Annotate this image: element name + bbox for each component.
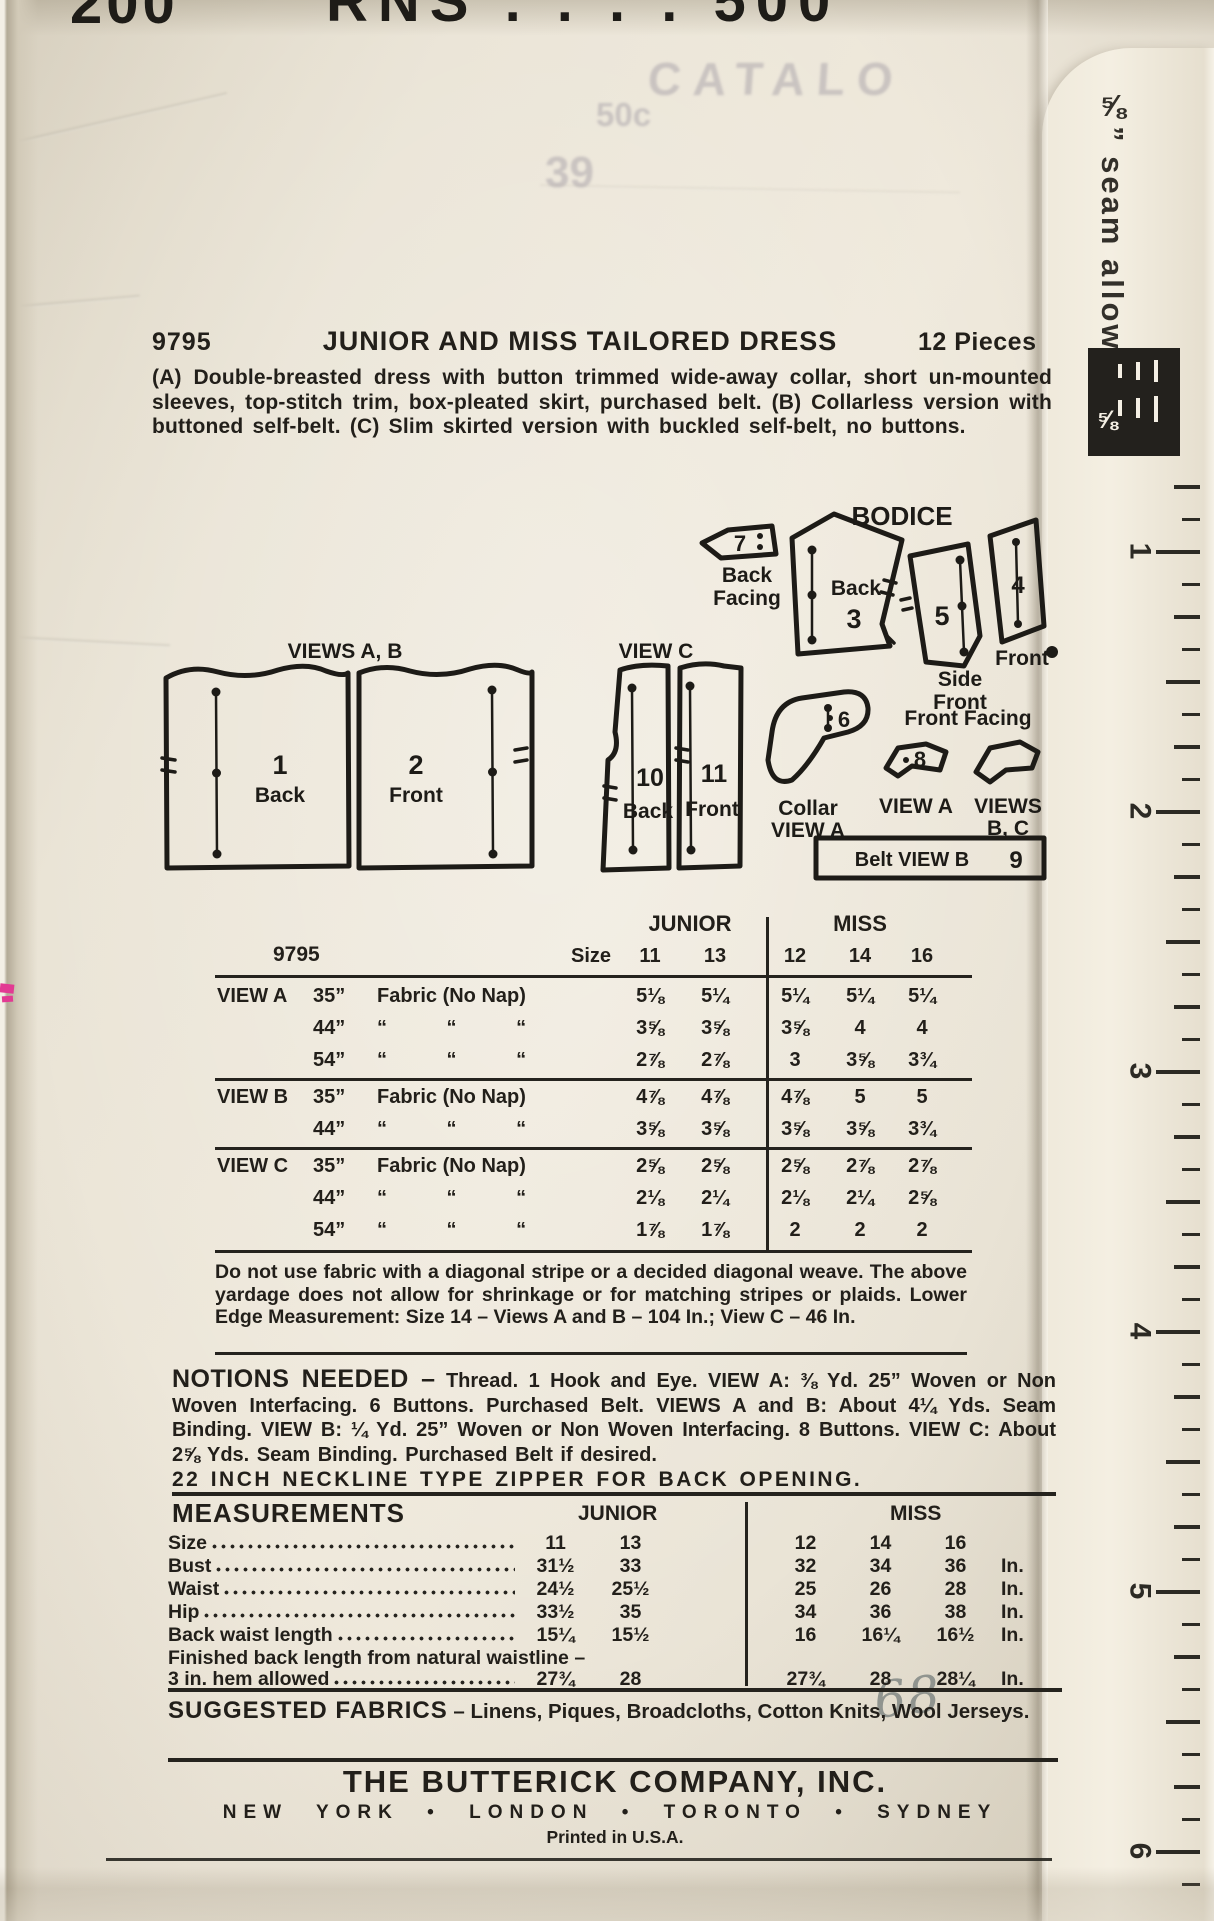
ruler-tick [1174, 615, 1200, 619]
measure-miss-14: 14 [843, 1532, 918, 1555]
fabric-width: 35” [313, 1155, 373, 1178]
fabrics-body: – Linens, Piques, Broadcloths, Cotton Kn… [453, 1700, 1029, 1723]
ruler-tick [1182, 843, 1200, 847]
page-title: JUNIOR AND MISS TAILORED DRESS [323, 326, 838, 357]
measurement-label: Hip [168, 1601, 199, 1624]
fabric-label: “ “ “ [377, 1187, 617, 1210]
yardage-junior-11: 2⅛ [615, 1187, 685, 1210]
yardage-miss-12: 3⅝ [760, 1118, 830, 1141]
fabric-label: Fabric (No Nap) [377, 1086, 617, 1109]
suggested-fabrics: SUGGESTED FABRICS – Linens, Piques, Broa… [168, 1698, 1052, 1724]
yardage-junior-13: 4⅞ [680, 1086, 750, 1109]
pink-mark [0, 983, 14, 993]
miss-header: MISS [795, 911, 925, 937]
piece-10-number: 10 [636, 764, 664, 792]
piece-8-number: 8 [914, 747, 926, 772]
yardage-miss-14: 3⅝ [825, 1049, 895, 1072]
yardage-miss-14: 5 [825, 1086, 895, 1109]
junior-header: JUNIOR [615, 911, 765, 937]
ruler-tick [1166, 680, 1200, 684]
ruler-tick [1156, 810, 1200, 814]
size-14: 14 [825, 945, 895, 968]
grainline [632, 688, 633, 850]
measure-junior-13: 33 [593, 1555, 668, 1578]
fabric-width: 54” [313, 1219, 373, 1242]
yardage-junior-11: 1⅞ [615, 1219, 685, 1242]
dot [488, 686, 497, 695]
yardage-junior-11: 2⅝ [615, 1155, 685, 1178]
ruler-tick [1174, 875, 1200, 879]
ruler-tick [1182, 1363, 1200, 1367]
piece-2-number: 2 [408, 750, 423, 780]
ruler-tick [1182, 1688, 1200, 1692]
unit-label: In. [993, 1624, 1061, 1647]
dot [1014, 620, 1022, 628]
yardage-row: 44”“ “ “3⅝3⅝3⅝44 [215, 1013, 972, 1045]
yardage-miss-14: 2 [825, 1219, 895, 1242]
yardage-pattern-number: 9795 [273, 943, 320, 967]
fabric-width: 35” [313, 985, 373, 1008]
section-rule [172, 1492, 1056, 1496]
yardage-row: 44”“ “ “3⅝3⅝3⅝3⅝3¾ [215, 1114, 972, 1146]
paper-crease [540, 184, 960, 194]
piece-4-number: 4 [1011, 572, 1025, 599]
fabric-label: “ “ “ [377, 1219, 617, 1242]
measurement-label-leader: Hip [168, 1601, 518, 1624]
measure-miss-12: 25 [768, 1578, 843, 1601]
yardage-miss-12: 3 [760, 1049, 830, 1072]
yardage-miss-16: 5¼ [887, 985, 957, 1008]
fabric-width: 54” [313, 1049, 373, 1072]
measure-miss-16: 16½ [918, 1624, 993, 1647]
size-12: 12 [760, 945, 830, 968]
ruler-tick [1174, 1005, 1200, 1009]
ruler-tick [1182, 1298, 1200, 1302]
paper-crease [20, 295, 140, 308]
ruler-number: 4 [1123, 1323, 1157, 1340]
measurement-label-leader: Size [168, 1532, 518, 1555]
measure-junior-13: 13 [593, 1532, 668, 1555]
ruler-strip: ⅝” seam allowance ⅝ 123456 [1042, 48, 1214, 1921]
dot [808, 546, 817, 555]
ruler-tick [1174, 1135, 1200, 1139]
yardage-rows: VIEW A35”Fabric (No Nap)5⅛5¼5¼5¼5¼44”“ “… [215, 981, 972, 1253]
section-rule [168, 1688, 1062, 1692]
ruler-number: 1 [1123, 543, 1157, 560]
dot-leader [336, 1624, 515, 1647]
yardage-miss-14: 4 [825, 1017, 895, 1040]
measure-miss-16: 38 [918, 1601, 993, 1624]
notches [901, 598, 912, 610]
measurement-label-leader: Bust [168, 1555, 518, 1578]
unit-label: In. [993, 1555, 1061, 1578]
measurements-title: MEASUREMENTS [172, 1498, 405, 1529]
section-rule [215, 1352, 967, 1355]
measure-junior-11: 15¼ [518, 1624, 593, 1647]
yardage-junior-11: 2⅞ [615, 1049, 685, 1072]
piece-6-number: 6 [838, 707, 850, 732]
measurement-label: Bust [168, 1555, 211, 1578]
piece-5-label: Side [938, 668, 982, 691]
piece-bc-label: B, C [987, 817, 1029, 840]
dot [958, 602, 967, 611]
size-11: 11 [615, 945, 685, 968]
measurement-row: Back waist length15¼15½1616¼16½In. [168, 1624, 1062, 1647]
fabric-label: “ “ “ [377, 1017, 617, 1040]
piece-10-label: Back [623, 800, 674, 823]
yardage-miss-12: 2⅝ [760, 1155, 830, 1178]
piece-1-label: Back [255, 784, 306, 807]
table-rule [215, 1147, 972, 1150]
views-ab-label: VIEWS A, B [288, 640, 403, 663]
piece-3-label: Back [831, 577, 882, 600]
measure-junior-13: 25½ [593, 1578, 668, 1601]
ruler-tick [1156, 1330, 1200, 1334]
yardage-junior-13: 3⅝ [680, 1017, 750, 1040]
measure-junior-11: 24½ [518, 1578, 593, 1601]
ruler-tick [1182, 1493, 1200, 1497]
yardage-miss-16: 5 [887, 1086, 957, 1109]
measure-miss-14: 34 [843, 1555, 918, 1578]
measurement-label-leader: Back waist length [168, 1624, 518, 1647]
piece-4-label: Front [995, 647, 1049, 670]
yardage-row: 54”“ “ “1⅞1⅞222 [215, 1215, 972, 1247]
piece-7-number: 7 [734, 531, 746, 556]
dot [629, 846, 638, 855]
measure-miss-16: 16 [918, 1532, 993, 1555]
dot [808, 636, 817, 645]
dot-leader [202, 1601, 515, 1624]
piece-6-outline [768, 692, 868, 782]
measurement-row: Waist24½25½252628In. [168, 1578, 1062, 1601]
measure-miss-16: 36 [918, 1555, 993, 1578]
dot [488, 768, 497, 777]
yardage-miss-12: 5¼ [760, 985, 830, 1008]
ruler-tick [1174, 1525, 1200, 1529]
dot [960, 648, 969, 657]
junior-miss-divider [766, 917, 769, 1251]
fabrics-heading: SUGGESTED FABRICS [168, 1697, 448, 1724]
yardage-row: VIEW A35”Fabric (No Nap)5⅛5¼5¼5¼5¼ [215, 981, 972, 1013]
yardage-junior-11: 3⅝ [615, 1017, 685, 1040]
piece-7-label: Facing [713, 587, 781, 610]
yardage-miss-16: 3¾ [887, 1049, 957, 1072]
measure-miss-12: 16 [768, 1624, 843, 1647]
yardage-junior-11: 5⅛ [615, 985, 685, 1008]
ruler-tick [1156, 1590, 1200, 1594]
measurement-label: Waist [168, 1578, 219, 1601]
dot-leader [222, 1578, 515, 1601]
fabric-label: Fabric (No Nap) [377, 1155, 617, 1178]
piece-2-outline [359, 665, 532, 868]
measurement-label: Back waist length [168, 1624, 333, 1647]
ruler-tick [1182, 1233, 1200, 1237]
yardage-miss-14: 2⅞ [825, 1155, 895, 1178]
ruler-tick [1182, 1558, 1200, 1562]
top-cutoff-text-right: RNS . . . . 500 [326, 0, 840, 35]
yardage-miss-12: 2⅛ [760, 1187, 830, 1210]
view-label: VIEW A [217, 985, 307, 1008]
measure-junior-13: 35 [593, 1601, 668, 1624]
ruler-tick [1156, 1070, 1200, 1074]
ruler-number: 5 [1123, 1583, 1157, 1600]
fabric-label: “ “ “ [377, 1118, 617, 1141]
belt-label: Belt VIEW B [855, 849, 969, 871]
measure-junior-11: 31½ [518, 1555, 593, 1578]
measure-miss-12: 32 [768, 1555, 843, 1578]
notions-heading: NOTIONS NEEDED – [172, 1365, 436, 1393]
yardage-miss-16: 2 [887, 1219, 957, 1242]
ruler-number: 2 [1123, 803, 1157, 820]
dot [213, 850, 222, 859]
ruler-tick [1174, 1655, 1200, 1659]
measure-junior-11: 11 [518, 1532, 593, 1555]
grainline [690, 686, 691, 850]
piece-8-label: VIEW A [879, 795, 953, 818]
ruler-number: 3 [1123, 1063, 1157, 1080]
ghost-text-price: 50c [596, 96, 651, 134]
view-c-label: VIEW C [619, 640, 694, 663]
company-name: THE BUTTERICK COMPANY, INC. [140, 1764, 1090, 1800]
dot [757, 544, 763, 550]
measurement-row: Finished back length from natural waistl… [168, 1647, 1062, 1668]
ruler-tick [1174, 745, 1200, 749]
piece-11-label: Front [685, 798, 739, 821]
dot [1012, 538, 1020, 546]
yardage-miss-12: 2 [760, 1219, 830, 1242]
fabric-width: 44” [313, 1187, 373, 1210]
measurement-rows: Size1113121416Bust31½33323436In.Waist24½… [168, 1532, 1062, 1691]
ruler-tick [1174, 1785, 1200, 1789]
dot-leader [210, 1532, 515, 1555]
piece-bc-outline [976, 742, 1038, 782]
ruler-tick [1182, 1753, 1200, 1757]
ruler-scale: 123456 [1042, 48, 1214, 1921]
front-facing-label: Front Facing [904, 707, 1031, 730]
pattern-piece-diagram: BODICE 7 Back Facing Back 3 5 Side Front… [140, 430, 1060, 890]
bodice-label: BODICE [851, 501, 952, 531]
measure-miss-14: 26 [843, 1578, 918, 1601]
measurement-row: Hip33½35343638In. [168, 1601, 1062, 1624]
ruler-tick [1174, 1265, 1200, 1269]
fabric-width: 35” [313, 1086, 373, 1109]
piece-1-number: 1 [272, 750, 287, 780]
zipper-note: 22 INCH NECKLINE TYPE ZIPPER FOR BACK OP… [172, 1468, 1056, 1493]
ruler-tick [1182, 518, 1200, 522]
yardage-miss-16: 2⅞ [887, 1155, 957, 1178]
dot [903, 757, 909, 763]
measurement-row: Size1113121416 [168, 1532, 1062, 1555]
piece-6-label: VIEW A [771, 819, 845, 842]
ruler-tick [1182, 778, 1200, 782]
piece-7-label: Back [722, 564, 773, 587]
unit-label: In. [993, 1578, 1061, 1601]
yardage-miss-14: 3⅝ [825, 1118, 895, 1141]
size-13: 13 [680, 945, 750, 968]
section-rule [168, 1758, 1058, 1762]
fabric-label: “ “ “ [377, 1049, 617, 1072]
piece-5-number: 5 [934, 601, 949, 631]
ruler-tick [1182, 1038, 1200, 1042]
piece-3-number: 3 [846, 604, 861, 634]
ruler-tick [1182, 1818, 1200, 1822]
fabric-label: Fabric (No Nap) [377, 985, 617, 1008]
ruler-number: 6 [1123, 1843, 1157, 1860]
measure-miss-14: 16¼ [843, 1624, 918, 1647]
yardage-row: 54”“ “ “2⅞2⅞33⅝3¾ [215, 1045, 972, 1077]
notches [515, 748, 527, 762]
envelope-left-edge [0, 0, 38, 1921]
printed-in-usa: Printed in U.S.A. [140, 1827, 1090, 1848]
ruler-tick [1182, 1103, 1200, 1107]
envelope-bottom-flap [0, 1867, 1214, 1921]
ghost-text-number: 39 [545, 148, 594, 198]
yardage-row: 44”“ “ “2⅛2¼2⅛2¼2⅝ [215, 1183, 972, 1215]
ruler-tick [1166, 1460, 1200, 1464]
ruler-tick [1182, 648, 1200, 652]
ruler-tick [1182, 1623, 1200, 1627]
piece-count: 12 Pieces [918, 328, 1037, 357]
ruler-tick [1166, 1720, 1200, 1724]
size-16: 16 [887, 945, 957, 968]
yardage-junior-13: 5¼ [680, 985, 750, 1008]
ruler-tick [1156, 550, 1200, 554]
belt-number: 9 [1009, 847, 1022, 874]
dot [824, 724, 832, 732]
measure-miss-16: 28 [918, 1578, 993, 1601]
yardage-junior-13: 1⅞ [680, 1219, 750, 1242]
measurements-miss-label: MISS [890, 1502, 941, 1526]
yardage-miss-16: 3¾ [887, 1118, 957, 1141]
measurement-label-leader: Waist [168, 1578, 518, 1601]
fabric-width: 44” [313, 1017, 373, 1040]
yardage-junior-13: 3⅝ [680, 1118, 750, 1141]
measure-miss-12: 34 [768, 1601, 843, 1624]
measurement-row: Bust31½33323436In. [168, 1555, 1062, 1578]
view-label: VIEW C [217, 1155, 307, 1178]
ruler-tick [1182, 1428, 1200, 1432]
dot [956, 556, 965, 565]
ghost-text-catalog: CATALO [646, 52, 907, 106]
fabric-width: 44” [313, 1118, 373, 1141]
ruler-tick [1182, 973, 1200, 977]
dot [687, 846, 696, 855]
dot [824, 704, 832, 712]
piece-11-number: 11 [701, 760, 728, 788]
pattern-envelope-back: { "colors":{"ink":"#221f1a","paper":"#ea… [0, 0, 1214, 1921]
dot [827, 715, 833, 721]
footer-rule [106, 1858, 1052, 1861]
yardage-row: VIEW B35”Fabric (No Nap)4⅞4⅞4⅞55 [215, 1082, 972, 1114]
dot [212, 688, 221, 697]
ruler-tick [1166, 1200, 1200, 1204]
style-description: (A) Double-breasted dress with button tr… [152, 366, 1052, 440]
piece-bc-label: VIEWS [974, 795, 1042, 818]
yardage-miss-12: 3⅝ [760, 1017, 830, 1040]
dot [686, 682, 695, 691]
piece-1-outline [166, 666, 349, 868]
ruler-tick [1182, 583, 1200, 587]
ruler-tick [1182, 713, 1200, 717]
table-rule [215, 1250, 972, 1253]
dot [808, 591, 817, 600]
dot [489, 850, 498, 859]
yardage-junior-13: 2⅝ [680, 1155, 750, 1178]
company-cities: NEW YORK • LONDON • TORONTO • SYDNEY [110, 1802, 1110, 1824]
measurements-junior-label: JUNIOR [578, 1502, 657, 1526]
notions-section: NOTIONS NEEDED – Thread. 1 Hook and Eye.… [172, 1367, 1056, 1493]
yardage-junior-11: 4⅞ [615, 1086, 685, 1109]
top-cutoff-text-left: 200 [70, 0, 179, 37]
yardage-miss-14: 5¼ [825, 985, 895, 1008]
ruler-tick [1174, 485, 1200, 489]
yardage-miss-16: 4 [887, 1017, 957, 1040]
pink-mark [2, 996, 13, 1003]
ruler-tick [1182, 908, 1200, 912]
measurement-label: Size [168, 1532, 207, 1555]
yardage-note: Do not use fabric with a diagonal stripe… [215, 1261, 967, 1329]
measure-miss-12: 12 [768, 1532, 843, 1555]
dot-leader [214, 1555, 515, 1578]
yardage-miss-14: 2¼ [825, 1187, 895, 1210]
pattern-number: 9795 [152, 328, 212, 357]
unit-label: In. [993, 1601, 1061, 1624]
size-column-label: Size [571, 945, 611, 968]
dot [212, 769, 221, 778]
yardage-row: VIEW C35”Fabric (No Nap)2⅝2⅝2⅝2⅞2⅞ [215, 1151, 972, 1183]
dot [628, 684, 637, 693]
ruler-tick [1156, 1850, 1200, 1854]
ruler-tick [1166, 940, 1200, 944]
table-rule [215, 1078, 972, 1081]
dot [757, 533, 763, 539]
yardage-miss-16: 2⅝ [887, 1187, 957, 1210]
measure-miss-14: 36 [843, 1601, 918, 1624]
measure-junior-13: 15½ [593, 1624, 668, 1647]
yardage-junior-11: 3⅝ [615, 1118, 685, 1141]
view-label: VIEW B [217, 1086, 307, 1109]
table-rule [215, 975, 972, 978]
yardage-miss-12: 4⅞ [760, 1086, 830, 1109]
yardage-junior-13: 2⅞ [680, 1049, 750, 1072]
ruler-tick [1182, 1168, 1200, 1172]
yardage-junior-13: 2¼ [680, 1187, 750, 1210]
junior-miss-divider [745, 1502, 748, 1686]
ruler-tick [1174, 1395, 1200, 1399]
measure-junior-11: 33½ [518, 1601, 593, 1624]
piece-6-label: Collar [778, 797, 838, 820]
piece-2-label: Front [389, 784, 443, 807]
measurement-label: Finished back length from natural waistl… [168, 1647, 585, 1670]
